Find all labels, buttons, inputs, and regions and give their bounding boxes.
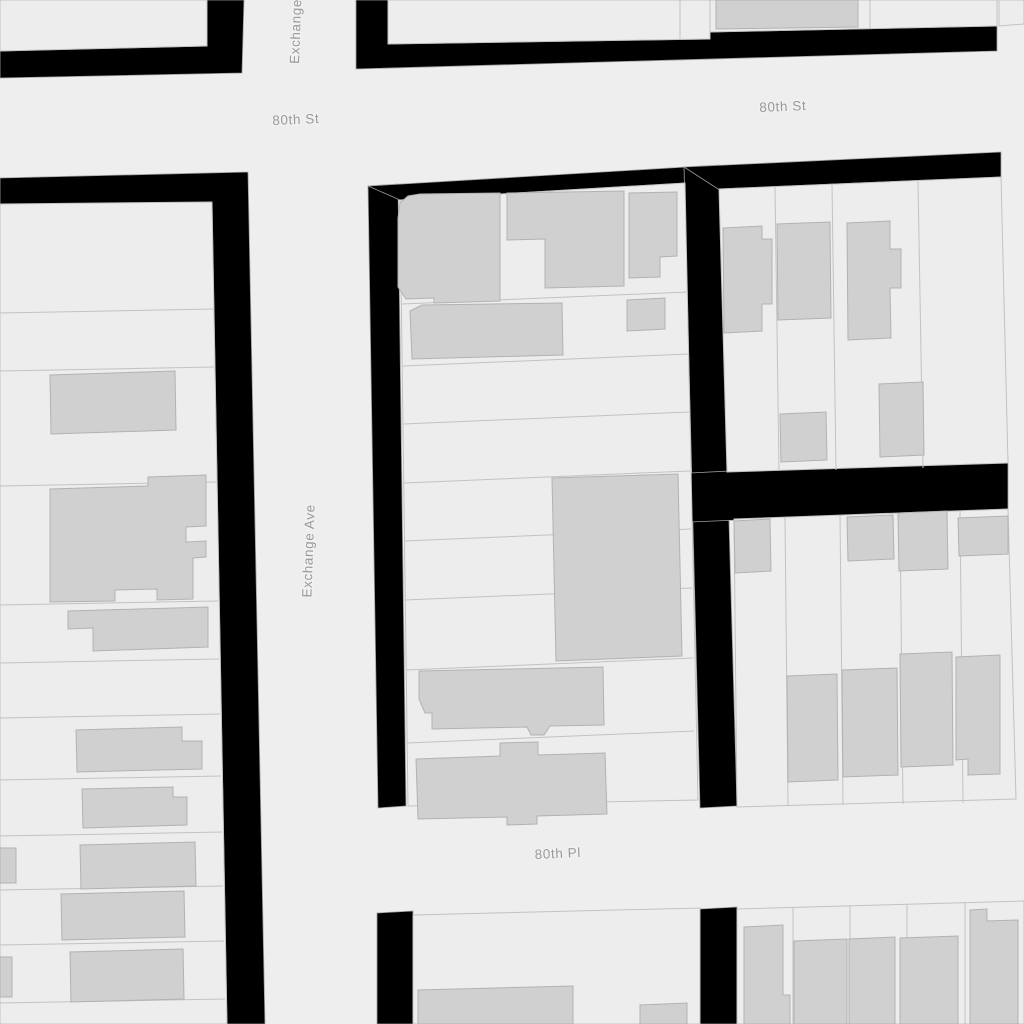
building [958, 516, 1008, 556]
building [0, 848, 16, 883]
building [842, 668, 898, 777]
parcel-block-top-1 [388, 0, 710, 44]
building [627, 298, 665, 331]
parcel-block-topleft [0, 0, 207, 51]
building [777, 222, 831, 320]
parcel-block-top-3 [999, 0, 1024, 26]
building [898, 511, 948, 571]
building [80, 842, 196, 889]
building [734, 519, 771, 573]
building [879, 382, 924, 457]
street-label-80th-pl: 80th Pl [534, 845, 581, 862]
building [0, 957, 12, 997]
building [640, 1003, 687, 1024]
building [50, 475, 206, 602]
map-canvas[interactable]: 80th St80th St80th PlExchange AveExchang… [0, 0, 1024, 1024]
building [794, 939, 847, 1024]
building [956, 655, 1000, 775]
building [847, 515, 894, 561]
street-label-80th-st-west: 80th St [272, 111, 320, 128]
building [418, 986, 573, 1024]
building [82, 787, 187, 828]
street-label-80th-st-east: 80th St [759, 98, 807, 115]
building [787, 674, 838, 782]
block-border-bottom-right [700, 907, 737, 1024]
building [744, 925, 790, 1024]
building [900, 652, 953, 767]
building [780, 412, 827, 462]
building [552, 474, 682, 661]
block-border-bottom-left [377, 911, 413, 1024]
building [716, 0, 858, 29]
building [900, 936, 958, 1024]
building [970, 909, 1018, 1024]
building [398, 193, 500, 303]
building [61, 891, 185, 940]
building [50, 371, 176, 434]
building [410, 303, 563, 359]
building [419, 667, 604, 735]
map-viewport[interactable]: 80th St80th St80th PlExchange AveExchang… [0, 0, 1024, 1024]
building [70, 949, 184, 1002]
building [849, 937, 895, 1024]
